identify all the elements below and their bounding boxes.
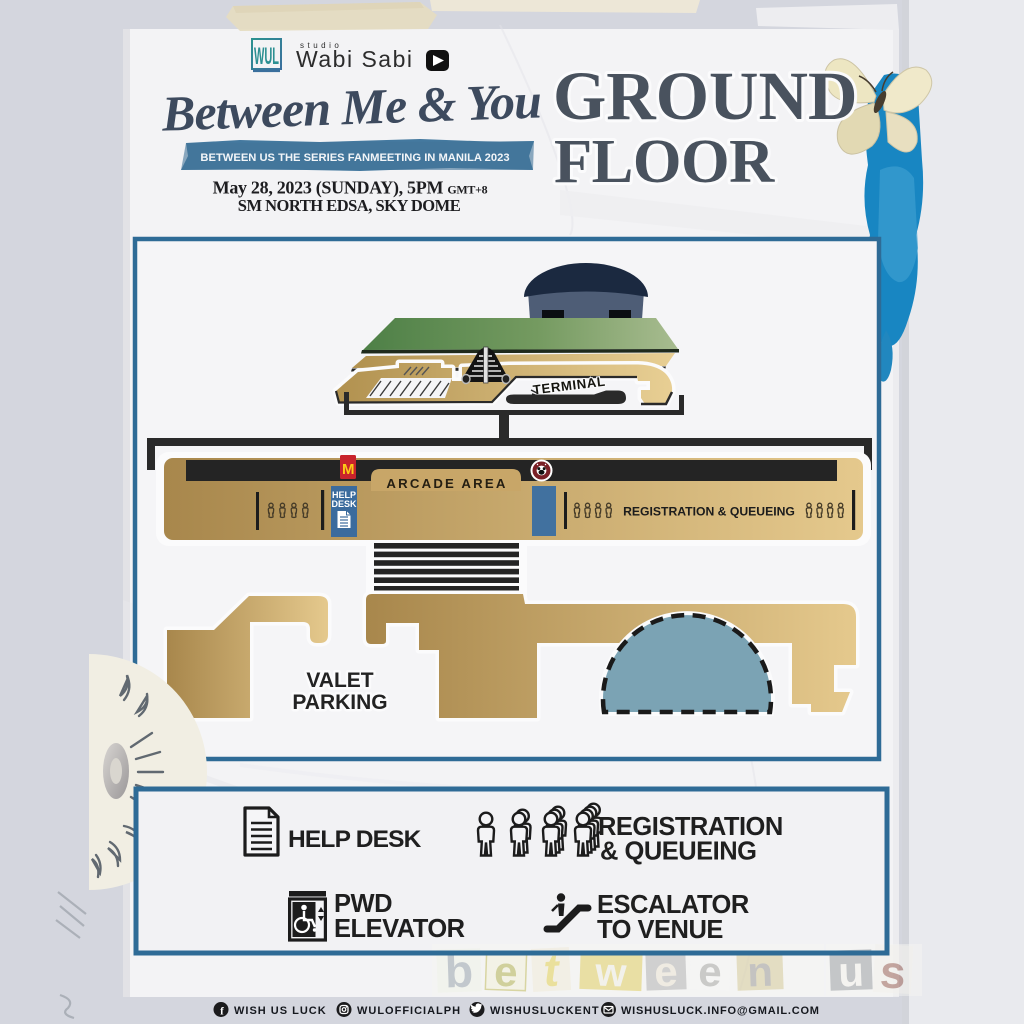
svg-text:VALET: VALET: [306, 669, 373, 692]
svg-text:ARCADE AREA: ARCADE AREA: [386, 476, 507, 491]
svg-text:BETWEEN US THE SERIES FANMEETI: BETWEEN US THE SERIES FANMEETING IN MANI…: [200, 152, 509, 164]
svg-text:PARKING: PARKING: [292, 691, 387, 714]
svg-text:SM NORTH EDSA, SKY DOME: SM NORTH EDSA, SKY DOME: [238, 196, 461, 215]
svg-text:FLOOR: FLOOR: [554, 126, 775, 196]
svg-text:Wabi Sabi: Wabi Sabi: [296, 46, 413, 72]
svg-text:WISHUSLUCKENT: WISHUSLUCKENT: [490, 1005, 600, 1017]
svg-text:DESK: DESK: [331, 499, 357, 509]
svg-text:PWD: PWD: [334, 890, 392, 918]
svg-text:GROUND: GROUND: [553, 58, 857, 134]
svg-text:TO VENUE: TO VENUE: [597, 916, 723, 944]
svg-text:f: f: [220, 1006, 224, 1018]
svg-text:REGISTRATION & QUEUEING: REGISTRATION & QUEUEING: [623, 505, 795, 519]
svg-text:WISHUSLUCK.INFO@GMAIL.COM: WISHUSLUCK.INFO@GMAIL.COM: [621, 1005, 820, 1017]
svg-text:HELP DESK: HELP DESK: [288, 826, 422, 853]
svg-text:& QUEUEING: & QUEUEING: [600, 838, 757, 866]
svg-text:w: w: [594, 950, 629, 995]
svg-text:ESCALATOR: ESCALATOR: [597, 891, 749, 919]
svg-text:WISH US LUCK: WISH US LUCK: [234, 1005, 327, 1017]
svg-text:WUL: WUL: [254, 43, 279, 70]
svg-text:M: M: [342, 461, 355, 478]
svg-text:WULOFFICIALPH: WULOFFICIALPH: [357, 1005, 461, 1017]
svg-text:ELEVATOR: ELEVATOR: [334, 915, 465, 943]
